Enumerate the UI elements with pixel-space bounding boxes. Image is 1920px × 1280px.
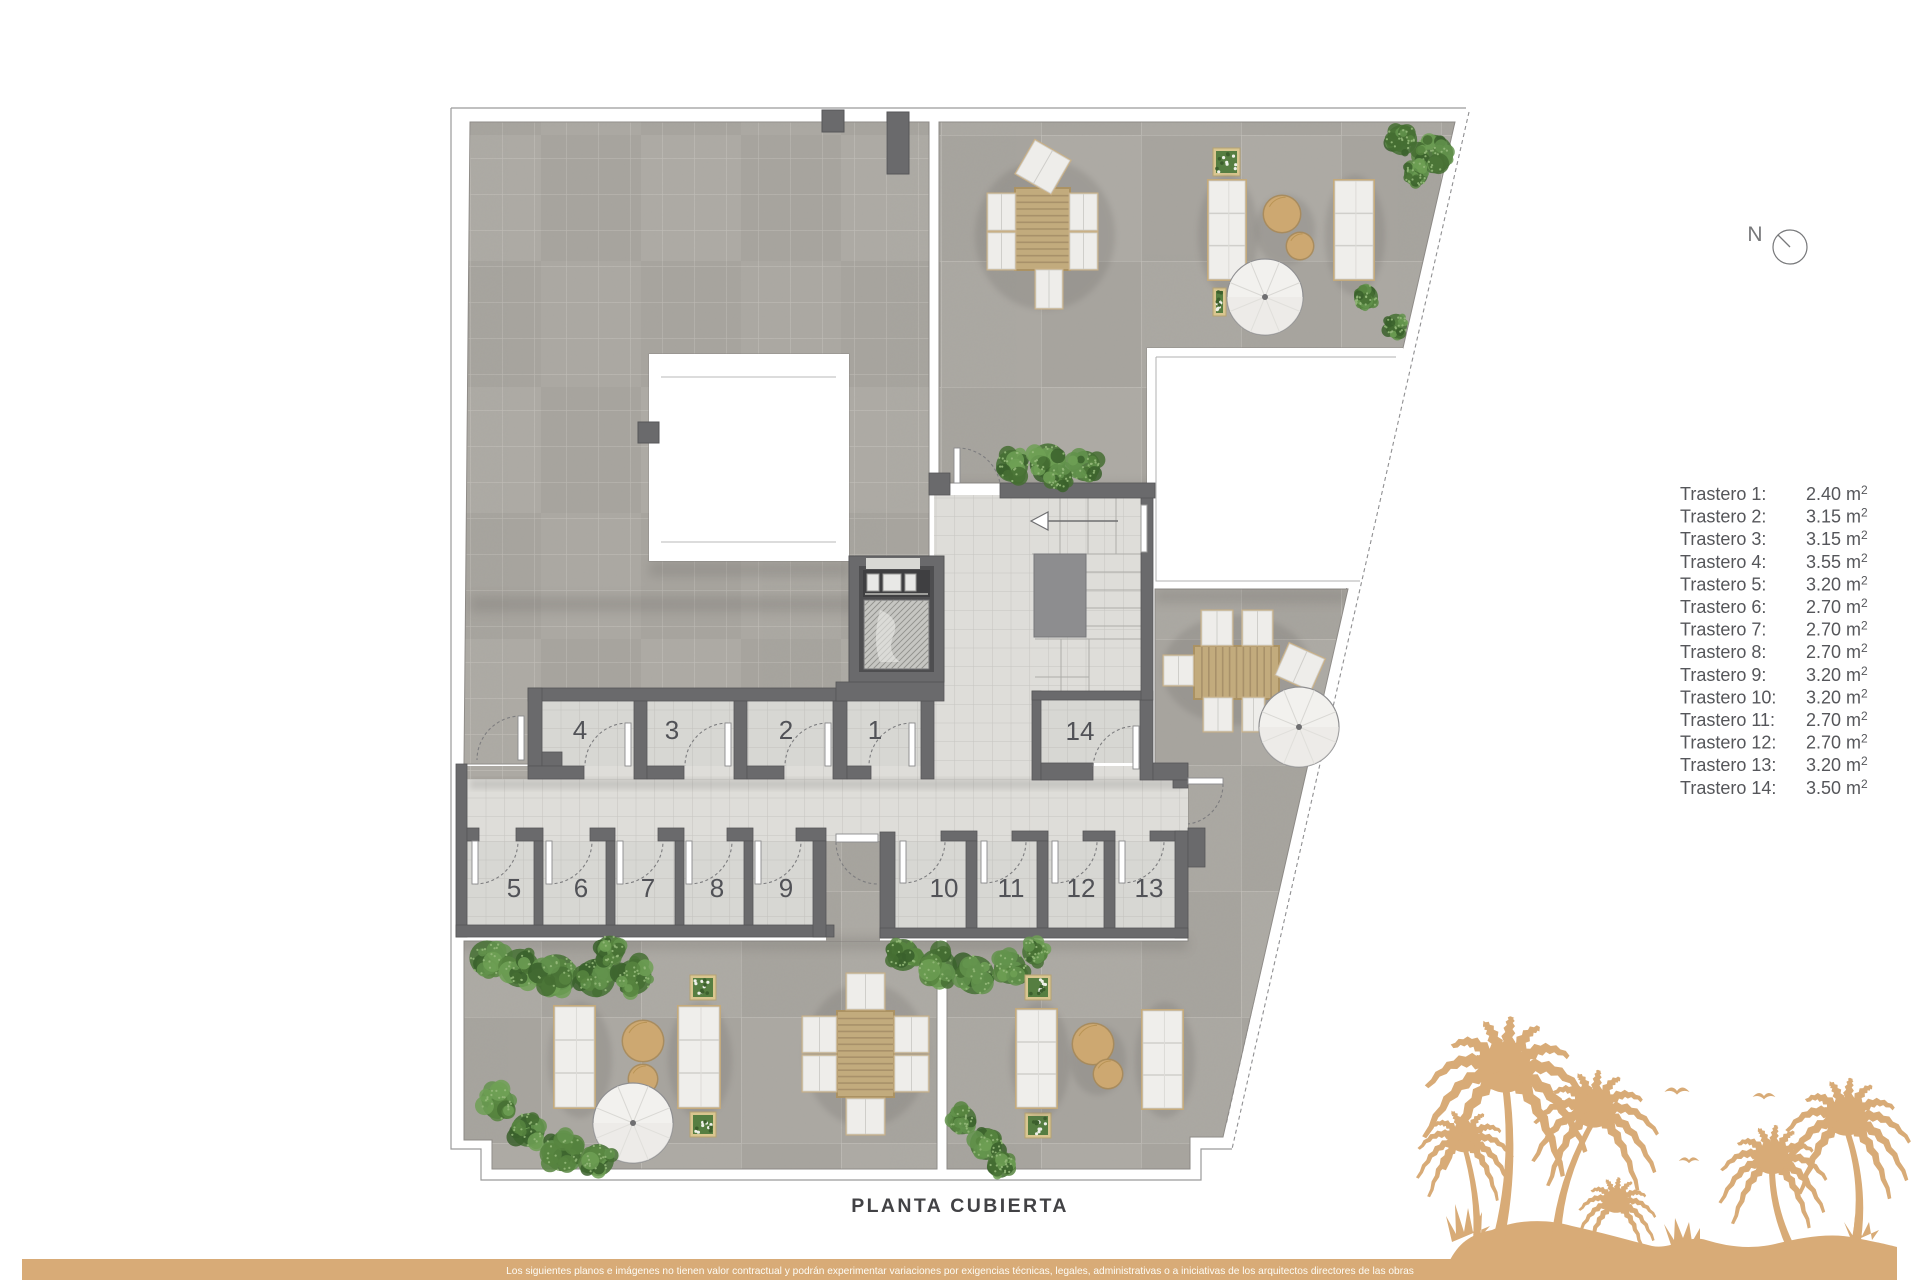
svg-text:14: 14 [1066,716,1095,746]
svg-text:Trastero 4:: Trastero 4: [1680,552,1766,572]
svg-text:9: 9 [779,873,793,903]
svg-text:5: 5 [507,873,521,903]
svg-text:3.50 m2: 3.50 m2 [1806,777,1868,798]
svg-text:Trastero 12:: Trastero 12: [1680,733,1776,753]
svg-text:Trastero 5:: Trastero 5: [1680,574,1766,594]
svg-text:8: 8 [710,873,724,903]
svg-text:2.70 m2: 2.70 m2 [1806,641,1868,662]
svg-text:Los siguientes planos e imágen: Los siguientes planos e imágenes no tien… [506,1266,1414,1277]
svg-text:3.20 m2: 3.20 m2 [1806,573,1868,594]
svg-text:3.20 m2: 3.20 m2 [1806,664,1868,685]
svg-text:2.70 m2: 2.70 m2 [1806,619,1868,640]
svg-text:12: 12 [1067,873,1096,903]
svg-text:2.40 m2: 2.40 m2 [1806,483,1868,504]
svg-text:Trastero 11:: Trastero 11: [1680,710,1775,730]
svg-text:4: 4 [573,715,587,745]
svg-text:7: 7 [641,873,655,903]
svg-text:Trastero 2:: Trastero 2: [1680,507,1766,527]
svg-text:Trastero 6:: Trastero 6: [1680,597,1766,617]
svg-text:3.20 m2: 3.20 m2 [1806,754,1868,775]
svg-text:2.70 m2: 2.70 m2 [1806,732,1868,753]
svg-text:Trastero 14:: Trastero 14: [1680,778,1776,798]
svg-text:3.15 m2: 3.15 m2 [1806,506,1868,527]
svg-text:6: 6 [574,873,588,903]
svg-text:PLANTA CUBIERTA: PLANTA CUBIERTA [851,1195,1069,1217]
svg-text:2.70 m2: 2.70 m2 [1806,709,1868,730]
svg-text:13: 13 [1135,873,1164,903]
svg-text:Trastero 9:: Trastero 9: [1680,665,1766,685]
svg-text:11: 11 [998,873,1025,903]
svg-text:Trastero 8:: Trastero 8: [1680,642,1766,662]
svg-text:3.15 m2: 3.15 m2 [1806,528,1868,549]
svg-text:3.20 m2: 3.20 m2 [1806,686,1868,707]
svg-text:10: 10 [930,873,959,903]
svg-text:Trastero 7:: Trastero 7: [1680,620,1766,640]
svg-text:1: 1 [868,715,882,745]
svg-text:Trastero 3:: Trastero 3: [1680,529,1766,549]
svg-text:Trastero 1:: Trastero 1: [1680,484,1766,504]
svg-text:N: N [1747,223,1762,246]
svg-text:2.70 m2: 2.70 m2 [1806,596,1868,617]
svg-text:Trastero 10:: Trastero 10: [1680,687,1776,707]
svg-text:Trastero 13:: Trastero 13: [1680,755,1776,775]
svg-text:3: 3 [665,715,679,745]
svg-text:2: 2 [779,715,793,745]
svg-text:3.55 m2: 3.55 m2 [1806,551,1868,572]
